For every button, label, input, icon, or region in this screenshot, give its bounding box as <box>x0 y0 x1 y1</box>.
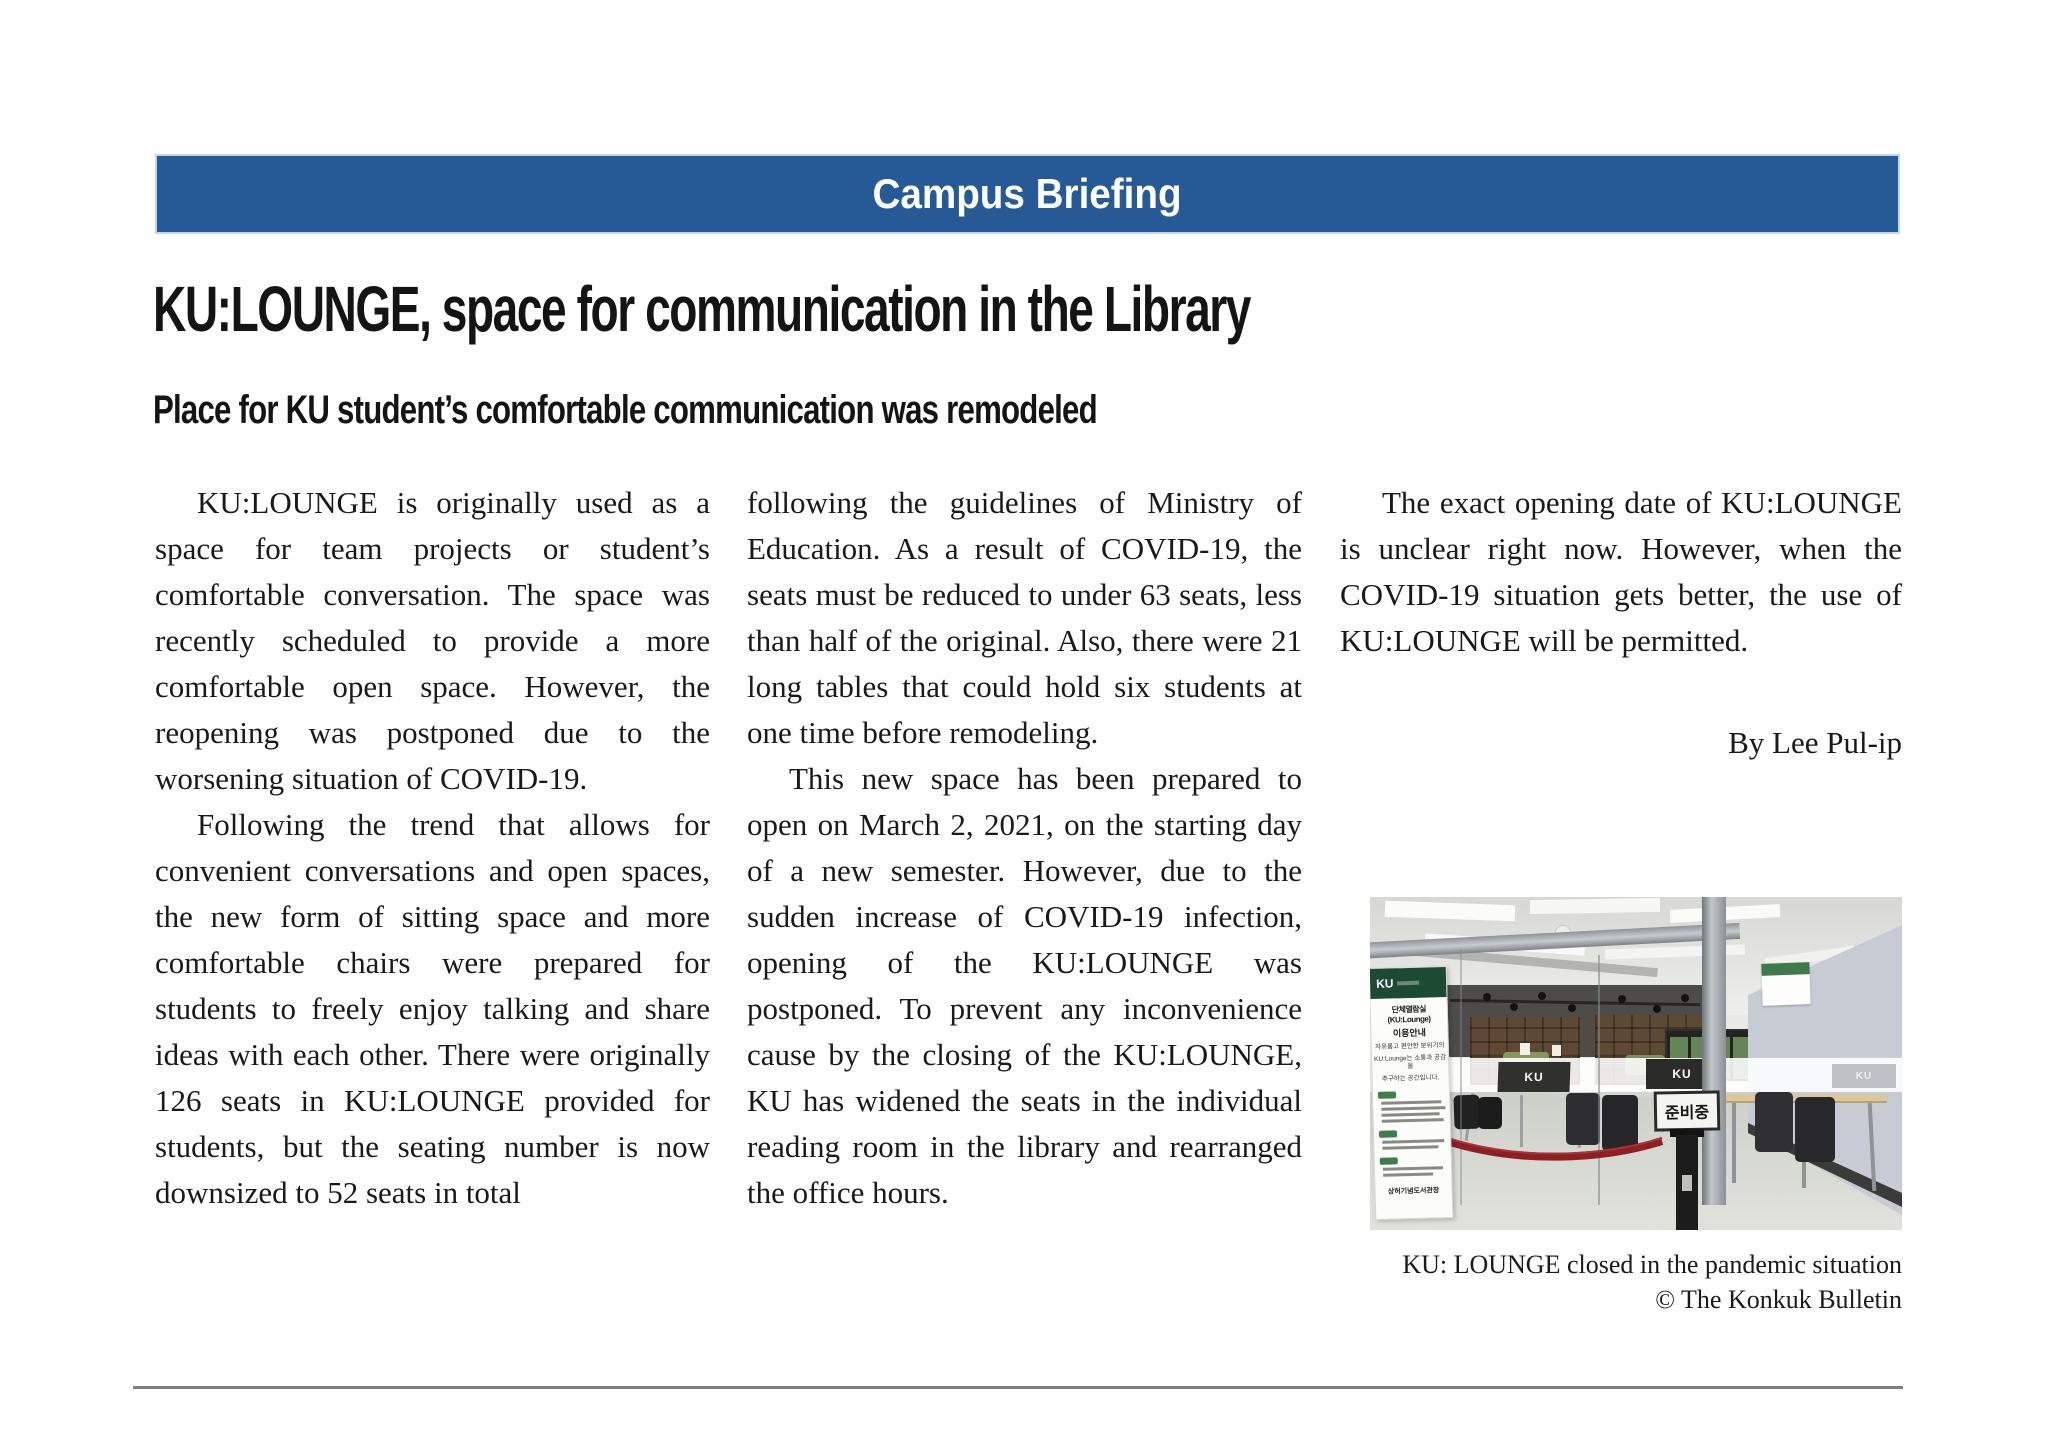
poster-text-bar <box>1383 1166 1443 1171</box>
poster-text-bar <box>1382 1139 1444 1144</box>
poster-text-line: 추구하는 공간입니다. <box>1373 1074 1449 1084</box>
lounge-photo: KU KU KU 준비중 KU 단체열람실(KU:Lounge) 이용안내 자유… <box>1370 897 1902 1230</box>
poster-header-deco <box>1397 981 1419 986</box>
section-banner: Campus Briefing <box>155 154 1900 234</box>
poster-text-bar <box>1382 1112 1440 1117</box>
poster-text-bar <box>1381 1100 1441 1105</box>
article-page: Campus Briefing KU:LOUNGE, space for com… <box>0 0 2049 1431</box>
paragraph: This new space has been prepared to open… <box>747 756 1302 1216</box>
ku-logo: KU <box>1376 976 1394 990</box>
article-subheadline: Place for KU student’s comfortable commu… <box>153 388 1097 433</box>
paragraph: following the guidelines of Ministry of … <box>747 480 1302 756</box>
article-column-3: The exact opening date of KU:LOUNGE is u… <box>1340 480 1902 766</box>
article-column-2: following the guidelines of Ministry of … <box>747 480 1302 1216</box>
poster-text-bar <box>1381 1106 1445 1111</box>
poster-section-chip <box>1379 1130 1397 1137</box>
poster-text-bar <box>1382 1145 1438 1149</box>
photo-caption-line1: KU: LOUNGE closed in the pandemic situat… <box>1340 1247 1902 1282</box>
standby-sign: 준비중 <box>1654 1090 1721 1131</box>
byline: By Lee Pul-ip <box>1340 720 1902 766</box>
article-headline: KU:LOUNGE, space for communication in th… <box>153 272 1250 346</box>
poster-text-bar <box>1382 1118 1444 1123</box>
poster-subtitle: 이용안내 <box>1371 1025 1447 1040</box>
stanchion-label <box>1682 1175 1692 1191</box>
article-column-1: KU:LOUNGE is originally used as a space … <box>155 480 710 1216</box>
paragraph: The exact opening date of KU:LOUNGE is u… <box>1340 480 1902 664</box>
poster-header: KU <box>1370 967 1447 999</box>
poster-text-bar <box>1383 1172 1433 1176</box>
poster-text-line: KU:Lounge는 소통과 공감을 <box>1372 1054 1448 1072</box>
poster-text-line: 자유롭고 편안한 분위기의 <box>1372 1042 1448 1052</box>
section-banner-label: Campus Briefing <box>873 170 1182 218</box>
poster-section-chip <box>1380 1157 1398 1164</box>
poster-footer: 상허기념도서관장 <box>1375 1185 1451 1197</box>
photo-caption: KU: LOUNGE closed in the pandemic situat… <box>1340 1247 1902 1317</box>
bottom-rule <box>133 1386 1903 1389</box>
paragraph: KU:LOUNGE is originally used as a space … <box>155 480 710 802</box>
notice-poster: KU 단체열람실(KU:Lounge) 이용안내 자유롭고 편안한 분위기의 K… <box>1370 966 1453 1220</box>
paragraph: Following the trend that allows for conv… <box>155 802 710 1216</box>
poster-title: 단체열람실(KU:Lounge) <box>1371 1003 1447 1025</box>
poster-section-chip <box>1378 1091 1396 1098</box>
photo-caption-credit: © The Konkuk Bulletin <box>1340 1282 1902 1317</box>
